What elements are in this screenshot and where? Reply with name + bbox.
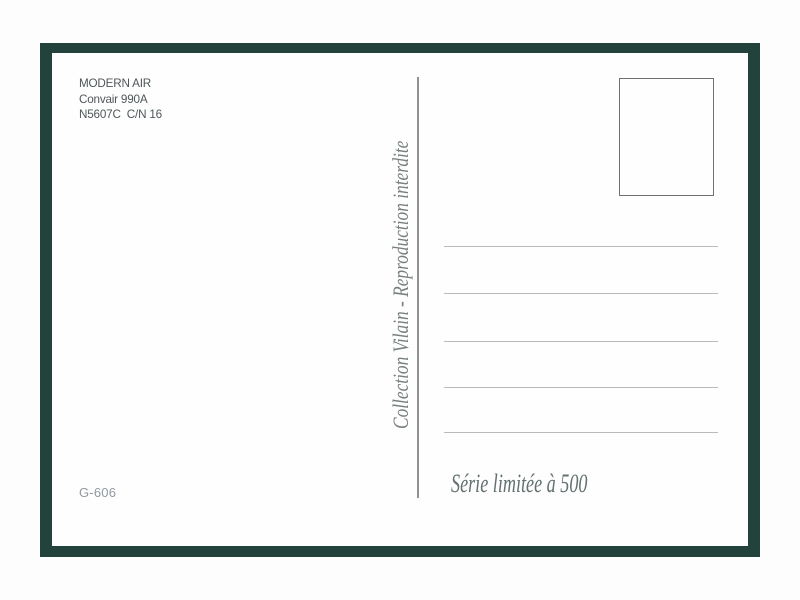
svg-text:Collection Vilain - Reproducti: Collection Vilain - Reproduction interdi… xyxy=(389,140,413,429)
svg-text:Série limitée à 500: Série limitée à 500 xyxy=(451,469,588,498)
